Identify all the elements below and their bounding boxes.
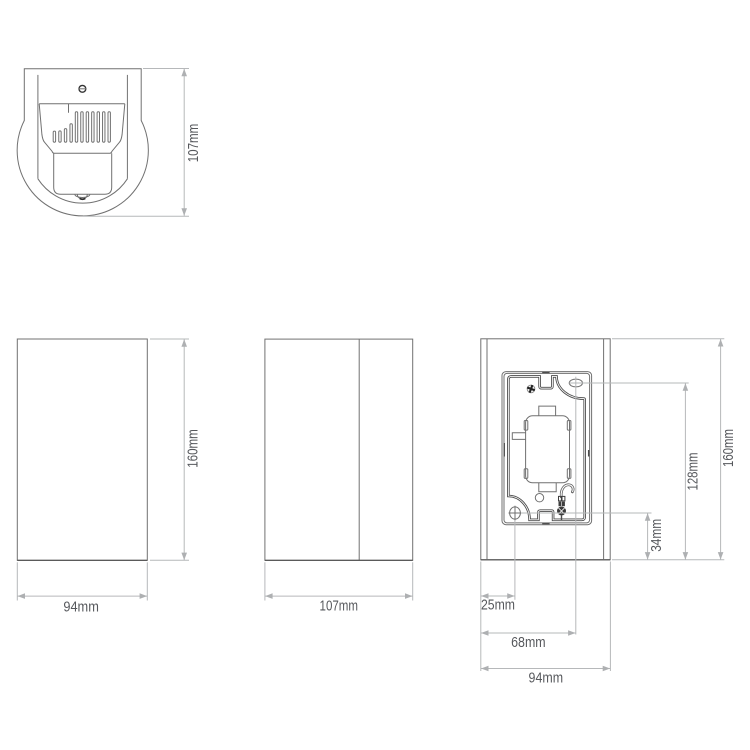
svg-text:128mm: 128mm [686,453,702,491]
svg-text:160mm: 160mm [721,429,737,467]
svg-text:25mm: 25mm [481,597,515,613]
svg-text:94mm: 94mm [63,599,99,615]
svg-text:160mm: 160mm [186,429,202,468]
svg-text:34mm: 34mm [649,519,665,552]
svg-text:107mm: 107mm [186,124,202,163]
svg-text:68mm: 68mm [511,635,546,651]
svg-text:94mm: 94mm [529,670,564,686]
svg-text:107mm: 107mm [320,599,359,615]
